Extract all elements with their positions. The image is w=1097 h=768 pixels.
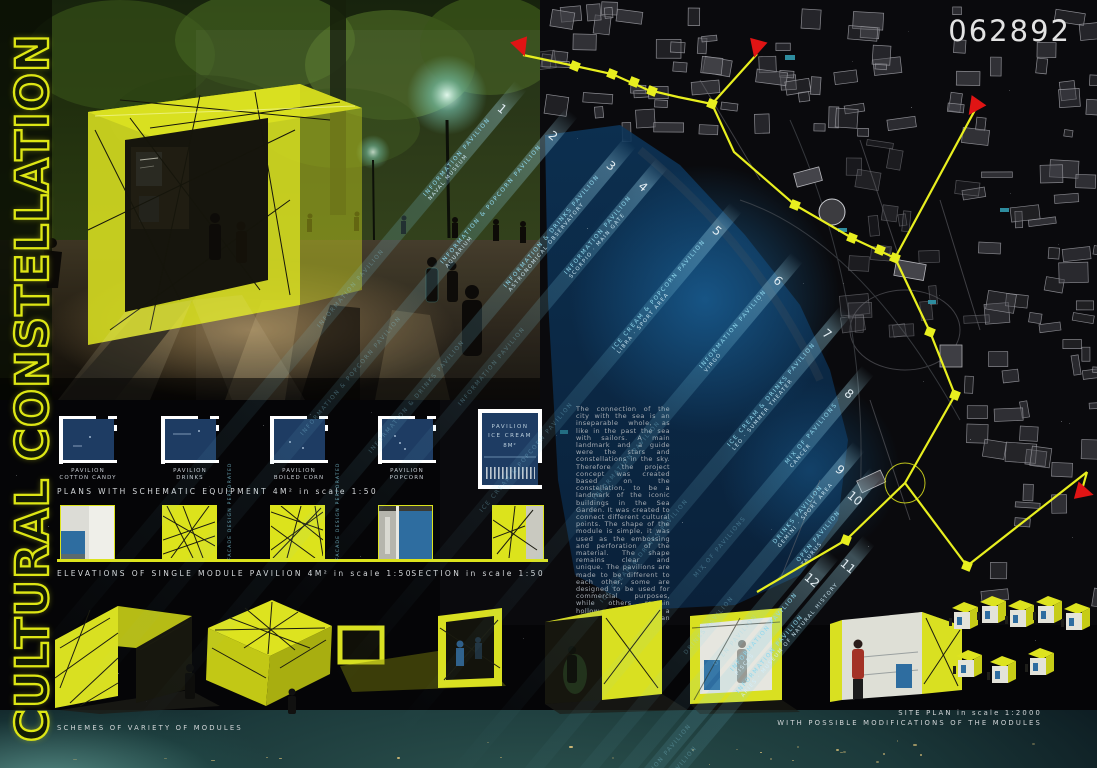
city-light-dot (876, 761, 879, 763)
elevation-section (492, 505, 544, 560)
star-dot (923, 381, 924, 382)
star-dot (360, 556, 361, 557)
ray-7-number: 7 (819, 326, 834, 342)
ray-3-number: 3 (603, 158, 618, 174)
module-render-6 (830, 612, 962, 702)
board-title: CULTURAL CONSTELLATION (6, 0, 59, 742)
city-light-dot (211, 760, 215, 762)
board-code: 062892 (948, 14, 1071, 48)
plan-ice-cream-text-2: ICE CREAM (488, 433, 532, 439)
plan-label-1: PAVILION COTTON CANDY (49, 468, 127, 482)
siteplan-caption-line2: WITH POSSIBLE MODIFICATIONS OF THE MODUL… (777, 719, 1042, 727)
city-light-dot (913, 744, 917, 746)
siteplan-caption: SITE PLAN in scale 1:2000 WITH POSSIBLE … (777, 709, 1042, 728)
star-dot (371, 412, 372, 413)
city-light-dot (709, 764, 710, 766)
elevation-1 (60, 505, 115, 560)
city-light-dot (164, 758, 167, 760)
city-light-dot (797, 746, 799, 748)
city-light-dot (843, 751, 846, 753)
plan-label-3-top: PAVILION (282, 468, 316, 474)
ray-4-number: 4 (635, 179, 650, 195)
module-cluster-siteplan (949, 596, 1090, 683)
ray-9-number: 9 (832, 462, 847, 478)
plan-label-1-top: PAVILION (71, 468, 105, 474)
city-light-dot (760, 752, 762, 754)
siteplan-caption-line1: SITE PLAN in scale 1:2000 (898, 709, 1042, 717)
star-dot (911, 107, 912, 108)
city-light-dot (770, 758, 773, 760)
star-dot (263, 425, 264, 426)
city-light-dot (569, 746, 573, 748)
city-light-dot (279, 758, 282, 760)
plan-label-1-bottom: COTTON CANDY (59, 475, 116, 481)
star-dot (1072, 537, 1073, 538)
city-light-dot (883, 753, 885, 755)
star-dot (1009, 90, 1010, 91)
star-dot (939, 295, 940, 296)
city-light-dot (266, 757, 268, 759)
plan-label-3-bottom: BOILED CORN (274, 475, 324, 481)
city-light-dot (1032, 743, 1035, 745)
star-dot (1010, 193, 1011, 194)
city-light-dot (836, 749, 839, 751)
ray-2-number: 2 (545, 128, 560, 144)
plan-ice-cream-text-3: 8M² (503, 442, 516, 449)
star-dot (587, 228, 588, 229)
schemes-caption: SCHEMES OF VARIETY OF MODULES (57, 724, 243, 732)
elevation-4 (378, 505, 433, 560)
ray-6-number: 6 (770, 273, 785, 289)
city-light-dot (897, 740, 898, 742)
city-light-dot (397, 757, 401, 759)
city-light-dot (500, 757, 502, 759)
city-light-dot (612, 757, 615, 759)
city-light-dot (73, 759, 77, 761)
ray-8-number: 8 (841, 386, 856, 402)
competition-board: CULTURAL CONSTELLATION 062892 (0, 0, 1097, 768)
plan-cotton-candy (59, 416, 117, 464)
city-light-dot (792, 760, 794, 762)
star-dot (908, 31, 909, 32)
city-light-dot (736, 749, 738, 751)
plan-ice-cream-text-1: PAVILION (492, 424, 529, 430)
ray-5-number: 5 (709, 223, 724, 239)
city-light-dot (920, 754, 921, 756)
ray-1-number: 1 (494, 101, 509, 117)
